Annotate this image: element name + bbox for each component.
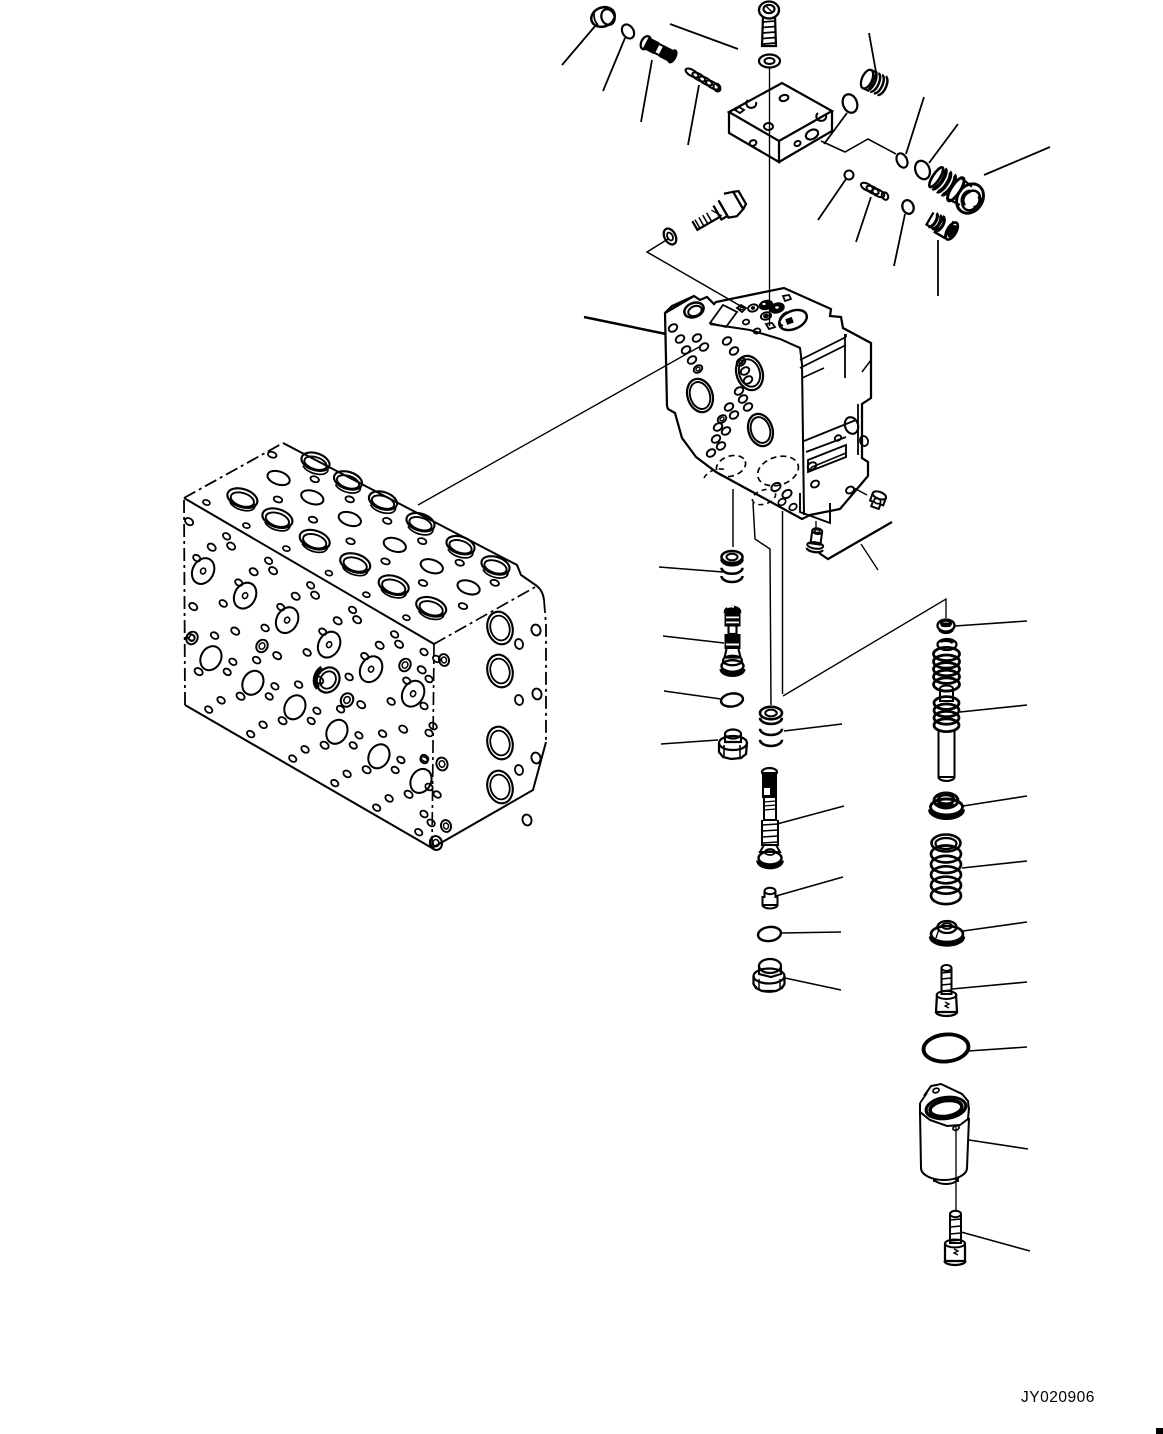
svg-text:JY020906: JY020906 [1021,1389,1095,1406]
